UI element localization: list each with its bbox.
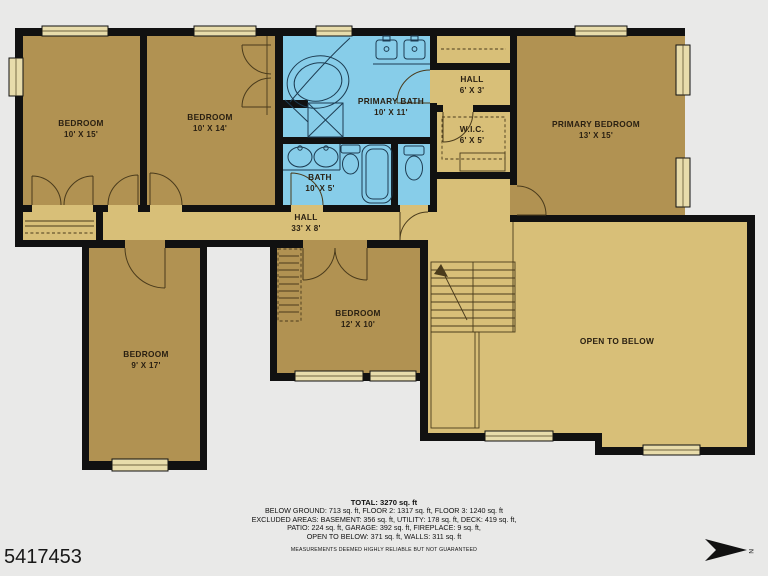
window xyxy=(575,26,627,36)
open-to-below-floor xyxy=(428,222,747,447)
floor-plan-drawing: BEDROOM 10' X 15' BEDROOM 10' X 14' PRIM… xyxy=(0,0,768,576)
room-label-primary-bath: PRIMARY BATH xyxy=(358,96,424,106)
room-label-open-to-below: OPEN TO BELOW xyxy=(580,336,654,346)
floor-plan-page: BEDROOM 10' X 15' BEDROOM 10' X 14' PRIM… xyxy=(0,0,768,576)
room-dims-wic: 6' X 5' xyxy=(460,136,485,145)
room-label-bedroom-3: BEDROOM xyxy=(335,308,380,318)
room-label-hall-upper: HALL xyxy=(460,74,483,84)
window xyxy=(676,45,690,95)
room-dims-primary-bedroom: 13' X 15' xyxy=(579,131,613,140)
room-label-primary-bedroom: PRIMARY BEDROOM xyxy=(552,119,640,129)
room-dims-bedroom-3: 12' X 10' xyxy=(341,320,375,329)
room-dims-primary-bath: 10' X 11' xyxy=(374,108,408,117)
window xyxy=(42,26,108,36)
window xyxy=(194,26,256,36)
area-line-4: OPEN TO BELOW: 371 sq. ft, WALLS: 311 sq… xyxy=(0,533,768,542)
linen-closet-floor xyxy=(437,36,510,63)
room-dims-bedroom-4: 9' X 17' xyxy=(131,361,160,370)
disclaimer: MEASUREMENTS DEEMED HIGHLY RELIABLE BUT … xyxy=(0,547,768,553)
room-label-bedroom-2: BEDROOM xyxy=(187,112,232,122)
area-summary: TOTAL: 3270 sq. ft BELOW GROUND: 713 sq.… xyxy=(0,498,768,553)
window xyxy=(370,371,416,381)
room-dims-bedroom-1: 10' X 15' xyxy=(64,130,98,139)
window xyxy=(676,158,690,207)
window xyxy=(295,371,363,381)
room-label-bedroom-1: BEDROOM xyxy=(58,118,103,128)
hall-floor xyxy=(103,212,437,240)
listing-id: 5417453 xyxy=(4,546,82,569)
room-dims-bedroom-2: 10' X 14' xyxy=(193,124,227,133)
window xyxy=(485,431,553,441)
room-dims-bath: 10' X 5' xyxy=(305,184,334,193)
room-dims-hall: 33' X 8' xyxy=(291,224,320,233)
window xyxy=(643,445,700,455)
window xyxy=(112,459,168,471)
room-label-bedroom-4: BEDROOM xyxy=(123,349,168,359)
room-label-bath: BATH xyxy=(308,172,332,182)
landing-floor xyxy=(437,179,510,240)
window xyxy=(9,58,23,96)
room-primary-bath-floor xyxy=(283,36,430,137)
window xyxy=(316,26,352,36)
room-label-hall: HALL xyxy=(294,212,317,222)
room-dims-hall-upper: 6' X 3' xyxy=(460,86,485,95)
water-closet-floor xyxy=(398,144,430,205)
room-label-wic: W.I.C. xyxy=(460,124,484,134)
